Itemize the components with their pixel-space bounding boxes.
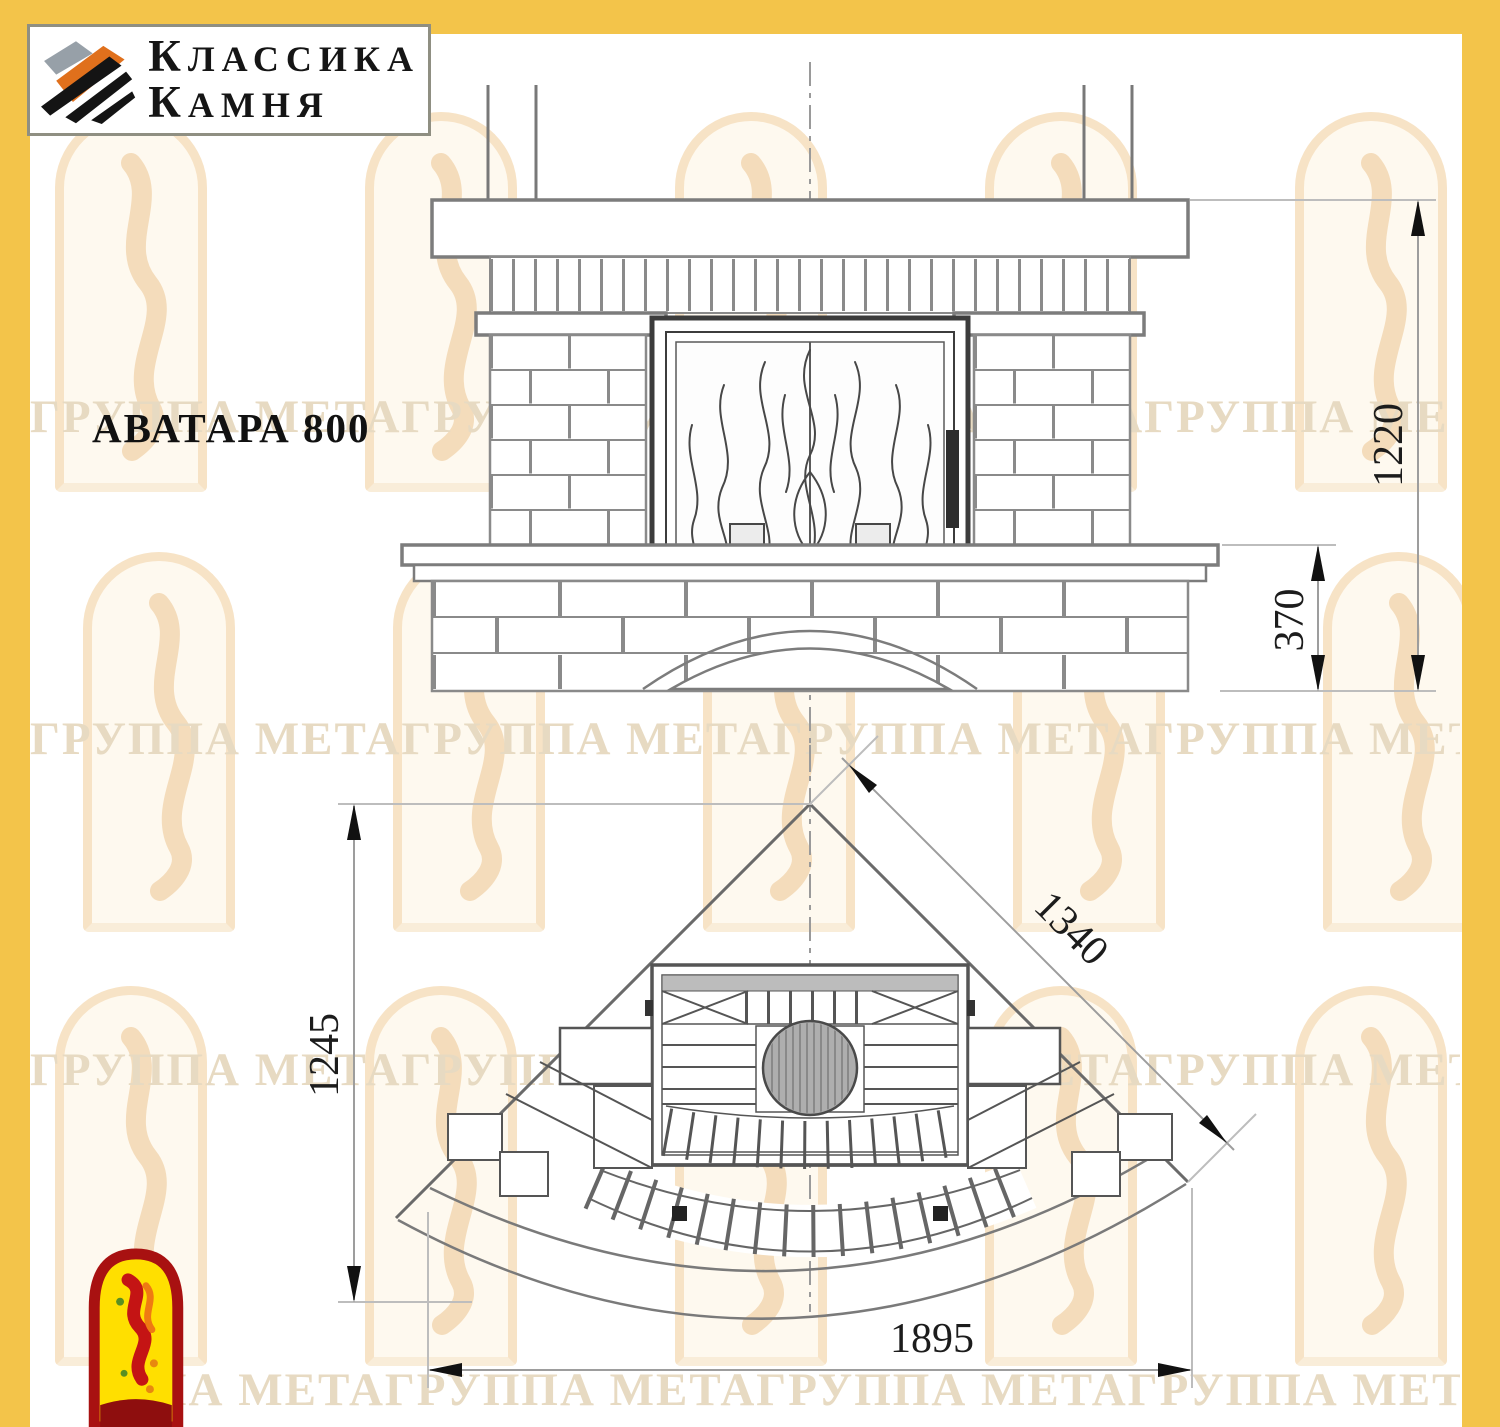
plan-firebox-unit	[645, 965, 975, 1165]
plan-view: 1245 1340 1895	[302, 736, 1256, 1388]
door-handle	[946, 430, 959, 528]
mantel-shelf	[432, 200, 1188, 257]
model-title: АВАТАРА 800	[92, 404, 370, 452]
brand-logo: КЛАССИКА КАМНЯ	[27, 24, 431, 136]
frame-border-right	[1462, 0, 1500, 1427]
masonry-base	[432, 581, 1188, 691]
brand-name-line2: КАМНЯ	[148, 80, 420, 126]
technical-drawing: 1220 370	[0, 0, 1500, 1427]
dim-label-1220: 1220	[1366, 403, 1412, 487]
dim-label-1340: 1340	[1025, 883, 1117, 975]
flue-circle	[763, 1021, 857, 1115]
dim-label-370: 370	[1267, 589, 1313, 652]
page: ГРУППА МЕТАГРУППА МЕТАГРУППА МЕТАГРУППА …	[0, 0, 1500, 1427]
dim-label-1895: 1895	[890, 1316, 974, 1362]
frame-border-left	[0, 0, 30, 1427]
brand-name-line1: КЛАССИКА	[148, 34, 420, 80]
soldier-brick-course	[490, 257, 1130, 313]
dimension-bench-height: 370	[1222, 545, 1336, 691]
column-cap-left	[476, 313, 666, 335]
hearth-bench-lip	[414, 565, 1206, 581]
hearth-bench-top	[402, 545, 1218, 565]
brand-logo-icon	[38, 27, 138, 133]
front-view: 1220 370	[402, 62, 1436, 772]
column-cap-right	[954, 313, 1144, 335]
brick-column-right	[974, 335, 1130, 545]
brand-name: КЛАССИКА КАМНЯ	[148, 34, 420, 126]
brick-column-left	[490, 335, 646, 545]
dim-label-1245: 1245	[302, 1013, 348, 1097]
metagroup-arch-logo-icon	[84, 1244, 188, 1427]
dimension-total-height: 1220	[1190, 200, 1436, 691]
